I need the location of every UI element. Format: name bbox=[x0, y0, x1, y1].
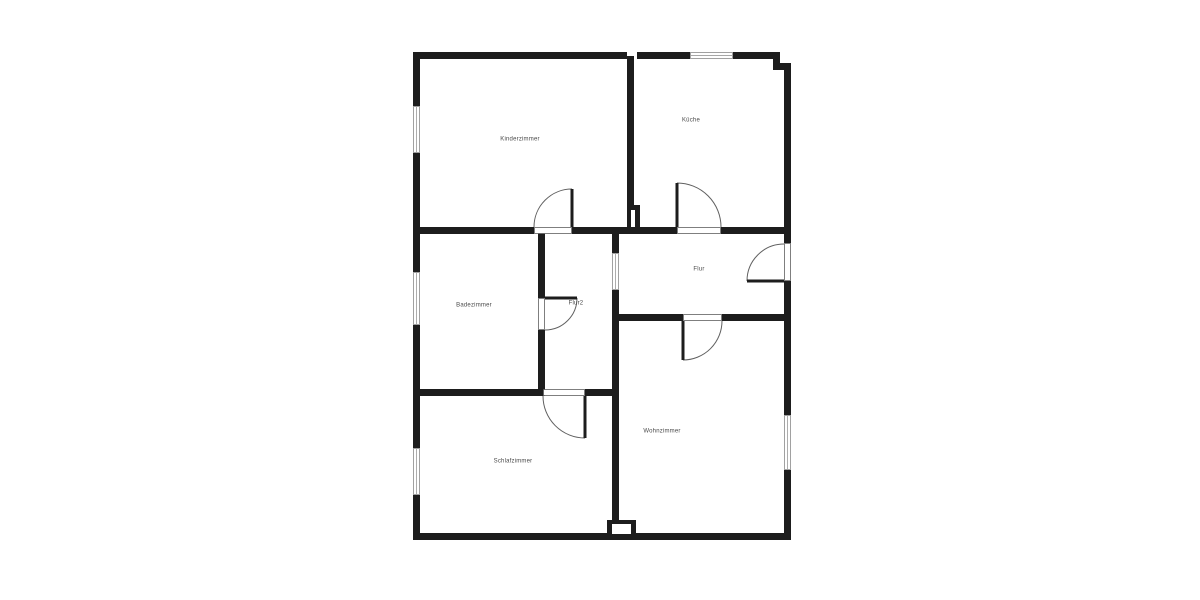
frame-schlafzimmer bbox=[544, 390, 585, 396]
room-label-badezimmer: Badezimmer bbox=[456, 303, 492, 309]
wall-shaft-notch bbox=[627, 52, 635, 56]
wall-segment bbox=[413, 325, 420, 448]
frame-kinderzimmer bbox=[535, 228, 572, 234]
frame-wohnzimmer bbox=[684, 315, 722, 321]
wall-segment bbox=[612, 314, 683, 321]
wall-segment bbox=[413, 495, 420, 540]
wall-segment bbox=[413, 52, 420, 106]
floor-plan-canvas: KinderzimmerKücheBadezimmerFlur2FlurSchl… bbox=[0, 0, 1200, 600]
wall-shaft-notch bbox=[612, 524, 631, 534]
wall-segment bbox=[612, 227, 619, 253]
wall-segment bbox=[722, 314, 791, 321]
floor-plan-page: KinderzimmerKücheBadezimmerFlur2FlurSchl… bbox=[0, 0, 1200, 600]
wall-segment bbox=[538, 330, 545, 396]
room-label-schlafzimmer: Schlafzimmer bbox=[494, 459, 533, 465]
wall-segment bbox=[721, 227, 791, 234]
wall-segment bbox=[572, 227, 677, 234]
frame-entrance bbox=[785, 244, 791, 281]
room-label-flur: Flur bbox=[693, 267, 704, 273]
wall-segment bbox=[413, 227, 534, 234]
room-label-flur2: Flur2 bbox=[569, 301, 584, 307]
wall-segment bbox=[733, 52, 780, 59]
room-label-wohnzimmer: Wohnzimmer bbox=[643, 429, 680, 435]
wall-segment bbox=[538, 230, 545, 298]
frame-flur2 bbox=[539, 299, 545, 330]
wall-segment bbox=[413, 389, 543, 396]
wall-shaft-notch bbox=[631, 210, 635, 227]
wall-segment bbox=[784, 470, 791, 540]
room-label-kinderzimmer: Kinderzimmer bbox=[500, 137, 539, 143]
wall-segment bbox=[784, 281, 791, 415]
wall-segment bbox=[413, 533, 791, 540]
wall-segment bbox=[637, 52, 690, 59]
wall-segment bbox=[784, 63, 791, 243]
wall-segment bbox=[627, 52, 634, 212]
wall-segment bbox=[413, 52, 627, 59]
frame-kueche bbox=[678, 228, 721, 234]
wall-segment bbox=[413, 153, 420, 272]
plan-background bbox=[0, 0, 1200, 600]
room-label-kueche: Küche bbox=[682, 118, 700, 124]
wall-segment bbox=[612, 290, 619, 521]
